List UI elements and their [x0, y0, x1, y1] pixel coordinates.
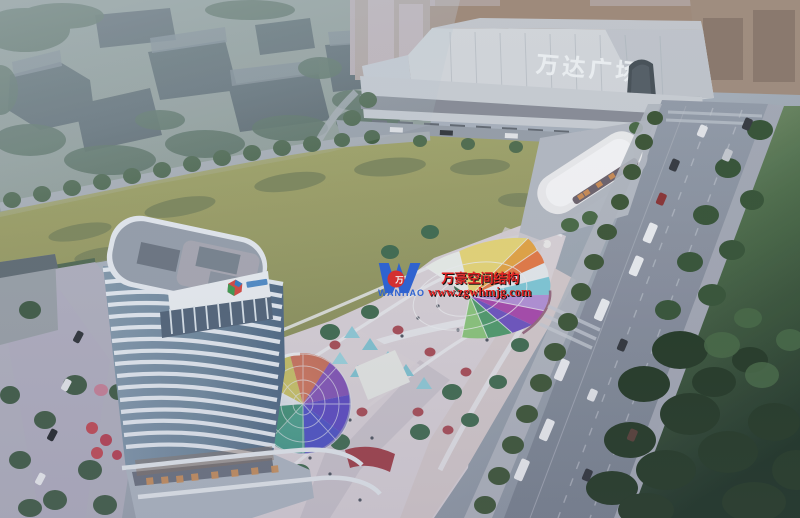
svg-text:WANHAO: WANHAO — [378, 288, 425, 298]
svg-text:www.zgwhmjg.com: www.zgwhmjg.com — [428, 285, 532, 299]
